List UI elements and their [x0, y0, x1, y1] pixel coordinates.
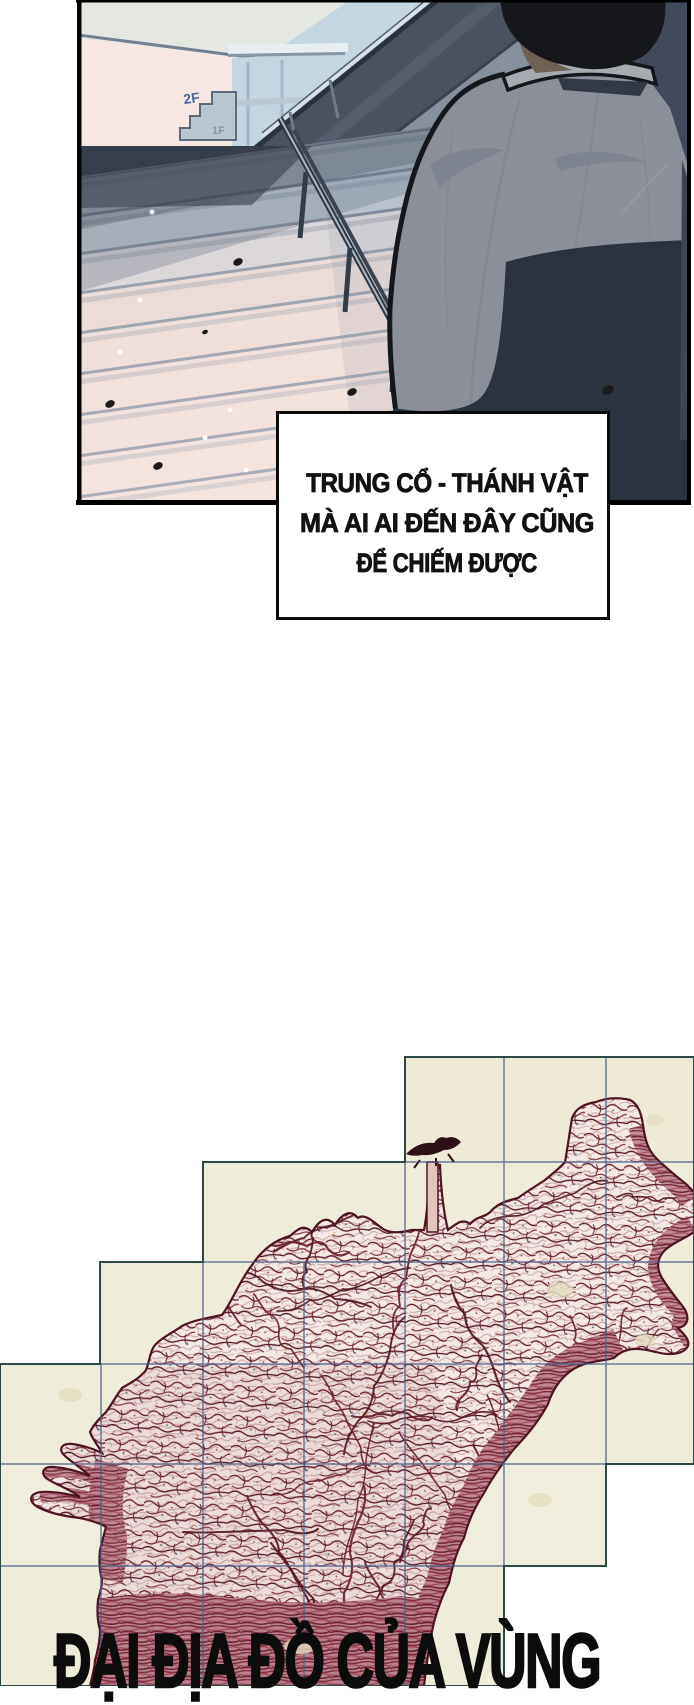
svg-text:2F: 2F [182, 89, 201, 107]
svg-text:1F: 1F [212, 125, 225, 137]
